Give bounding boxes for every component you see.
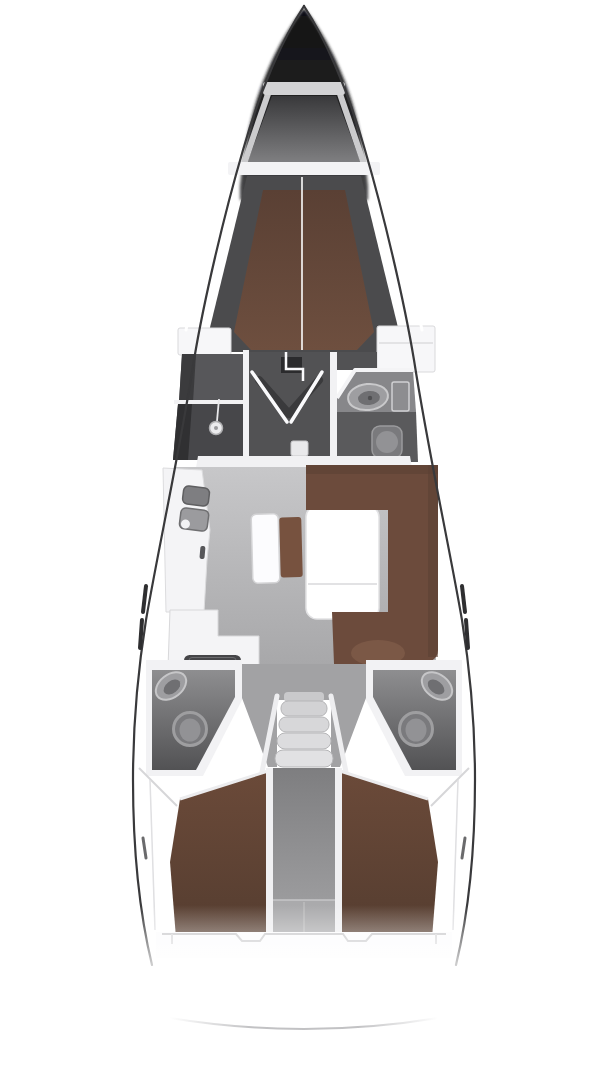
chainplate-starboard-2 <box>466 620 468 648</box>
wardrobe-starboard <box>377 326 435 372</box>
anchor-locker-lid <box>263 82 345 95</box>
saloon-table <box>306 506 379 619</box>
stern-fade <box>100 905 508 1035</box>
saloon-table-group <box>306 506 379 619</box>
step-tread-4 <box>275 750 333 767</box>
hull-window-slit-port <box>186 282 196 330</box>
step-tread-1 <box>281 701 327 716</box>
forward-shower-room <box>173 350 249 465</box>
shower-head-dot <box>214 426 218 430</box>
settee-back-top <box>306 465 438 474</box>
foredeck-cross-band <box>228 162 380 175</box>
yacht-floor-plan <box>0 0 608 1080</box>
nav-bench <box>251 514 280 584</box>
stern <box>100 905 508 1035</box>
galley-sink-1 <box>182 485 210 506</box>
nav-bench-cushion <box>279 517 303 578</box>
forward-washbasin-drain <box>368 396 372 400</box>
chainplate-starboard-1 <box>462 586 465 612</box>
wardrobe-port <box>178 328 231 355</box>
settee-back-right <box>428 465 438 657</box>
vestibule-door-slab <box>281 357 302 373</box>
port-aft-toilet-bowl <box>180 719 201 742</box>
chainplate-port-2 <box>140 620 142 648</box>
navigation-seat <box>251 513 303 583</box>
saloon <box>163 456 438 668</box>
hull-window-slit-starboard <box>412 282 422 330</box>
floor-plan-canvas <box>0 0 608 1080</box>
step-tread-3 <box>277 733 331 749</box>
vestibule-step-pad <box>291 441 308 456</box>
forward-head-cabinet <box>392 382 409 411</box>
shower-divider-wall <box>174 400 246 404</box>
chainplate-port-1 <box>143 586 146 612</box>
forward-toilet-bowl <box>376 431 398 453</box>
vestibule-port-wall <box>243 350 249 465</box>
step-tread-2 <box>279 717 329 732</box>
starboard-aft-toilet-bowl <box>406 719 427 742</box>
vestibule-starboard-wall <box>330 352 337 465</box>
